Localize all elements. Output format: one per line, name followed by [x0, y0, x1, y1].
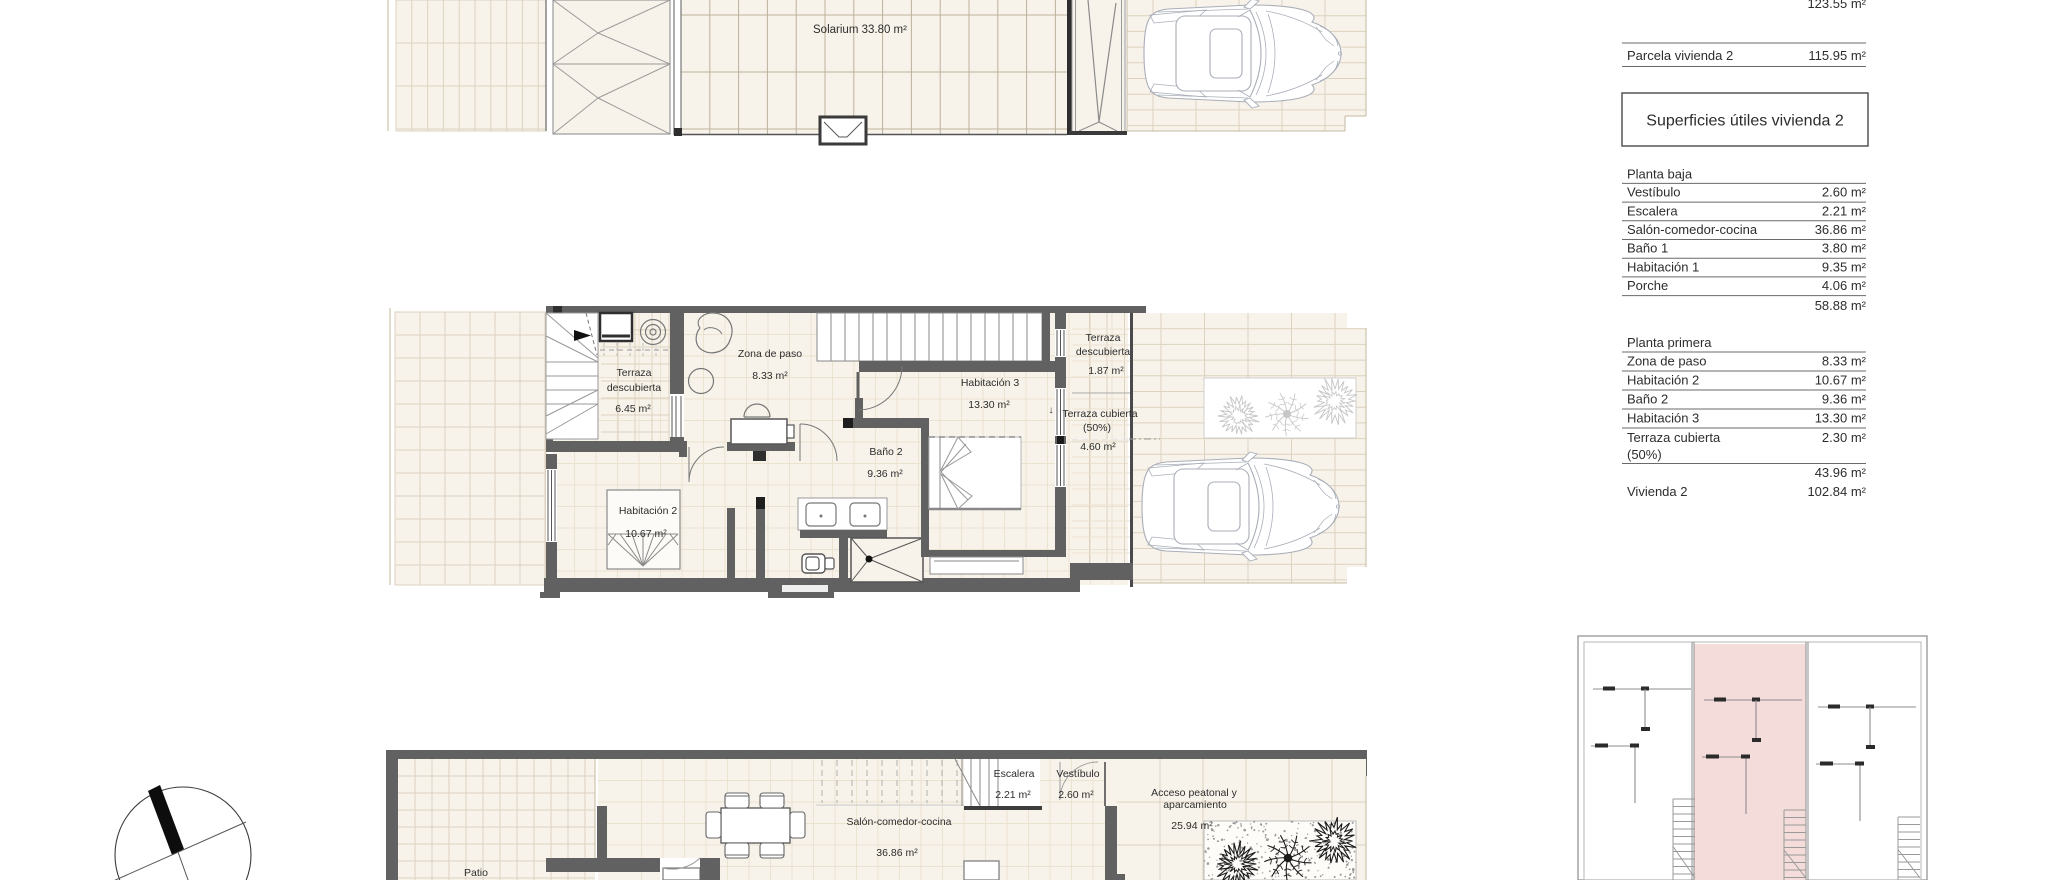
svg-text:descubierta: descubierta — [607, 382, 661, 394]
svg-text:Planta baja: Planta baja — [1627, 167, 1693, 182]
svg-text:Planta primera: Planta primera — [1627, 335, 1712, 350]
svg-text:10.67 m²: 10.67 m² — [625, 528, 667, 540]
svg-text:Zona de paso: Zona de paso — [738, 348, 802, 360]
svg-text:2.60 m²: 2.60 m² — [1822, 185, 1867, 200]
svg-text:Zona de paso: Zona de paso — [1627, 354, 1707, 369]
svg-text:3.80 m²: 3.80 m² — [1822, 241, 1867, 256]
svg-text:Acceso peatonal y: Acceso peatonal y — [1151, 787, 1238, 799]
svg-text:Patio: Patio — [464, 867, 488, 879]
svg-text:4.60 m²: 4.60 m² — [1080, 441, 1116, 453]
svg-text:9.36 m²: 9.36 m² — [1822, 392, 1867, 407]
svg-text:Terraza cubierta: Terraza cubierta — [1062, 408, 1137, 420]
svg-text:9.36 m²: 9.36 m² — [867, 468, 903, 480]
svg-text:Escalera: Escalera — [1627, 203, 1678, 218]
svg-text:Habitación 3: Habitación 3 — [961, 377, 1020, 389]
svg-text:(50%): (50%) — [1083, 422, 1111, 434]
svg-text:Porche: Porche — [1627, 278, 1668, 293]
svg-text:13.30 m²: 13.30 m² — [1815, 411, 1867, 426]
svg-text:descubierta: descubierta — [1076, 346, 1130, 358]
svg-text:Salón-comedor-cocina: Salón-comedor-cocina — [1627, 222, 1758, 237]
svg-text:10.67 m²: 10.67 m² — [1815, 373, 1867, 388]
svg-text:(50%): (50%) — [1627, 447, 1662, 462]
svg-text:102.84 m²: 102.84 m² — [1807, 484, 1866, 499]
svg-text:43.96 m²: 43.96 m² — [1815, 465, 1867, 480]
svg-text:Solarium 33.80 m²: Solarium 33.80 m² — [813, 24, 907, 36]
svg-text:58.88 m²: 58.88 m² — [1815, 298, 1867, 313]
svg-text:Salón-comedor-cocina: Salón-comedor-cocina — [846, 816, 951, 828]
svg-text:↓: ↓ — [1049, 405, 1054, 416]
svg-text:Baño 1: Baño 1 — [1627, 241, 1668, 256]
svg-text:Terraza: Terraza — [616, 367, 651, 379]
svg-text:Vestíbulo: Vestíbulo — [1627, 185, 1681, 200]
svg-text:Terraza cubierta: Terraza cubierta — [1627, 430, 1721, 445]
svg-text:2.21 m²: 2.21 m² — [995, 789, 1031, 801]
svg-text:2.60 m²: 2.60 m² — [1058, 789, 1094, 801]
svg-text:8.33 m²: 8.33 m² — [1822, 354, 1867, 369]
svg-text:Baño 2: Baño 2 — [869, 446, 902, 458]
svg-text:Parcela vivienda 2: Parcela vivienda 2 — [1627, 48, 1733, 63]
svg-text:aparcamiento: aparcamiento — [1163, 799, 1227, 811]
svg-text:Habitación 2: Habitación 2 — [1627, 373, 1699, 388]
svg-text:4.06 m²: 4.06 m² — [1822, 278, 1867, 293]
svg-text:123.55 m²: 123.55 m² — [1807, 0, 1866, 11]
svg-text:Escalera: Escalera — [994, 768, 1035, 780]
svg-text:2.30 m²: 2.30 m² — [1822, 430, 1867, 445]
svg-text:13.30 m²: 13.30 m² — [968, 399, 1010, 411]
svg-text:Habitación 1: Habitación 1 — [1627, 259, 1699, 274]
svg-text:Terraza: Terraza — [1085, 332, 1120, 344]
svg-text:Baño 2: Baño 2 — [1627, 392, 1668, 407]
svg-text:Vestíbulo: Vestíbulo — [1056, 768, 1099, 780]
svg-text:Habitación 2: Habitación 2 — [619, 505, 678, 517]
svg-text:1.87 m²: 1.87 m² — [1088, 365, 1124, 377]
svg-text:9.35 m²: 9.35 m² — [1822, 259, 1867, 274]
svg-text:115.95 m²: 115.95 m² — [1808, 48, 1866, 63]
svg-text:2.21 m²: 2.21 m² — [1822, 203, 1867, 218]
svg-text:8.33 m²: 8.33 m² — [752, 370, 788, 382]
svg-text:Vivienda 2: Vivienda 2 — [1627, 484, 1687, 499]
svg-text:36.86 m²: 36.86 m² — [876, 847, 918, 859]
svg-text:36.86 m²: 36.86 m² — [1815, 222, 1867, 237]
svg-text:Habitación 3: Habitación 3 — [1627, 411, 1699, 426]
svg-text:Superficies útiles vivienda 2: Superficies útiles vivienda 2 — [1646, 113, 1844, 130]
svg-text:6.45 m²: 6.45 m² — [615, 403, 651, 415]
svg-text:25.94 m²: 25.94 m² — [1171, 820, 1213, 832]
